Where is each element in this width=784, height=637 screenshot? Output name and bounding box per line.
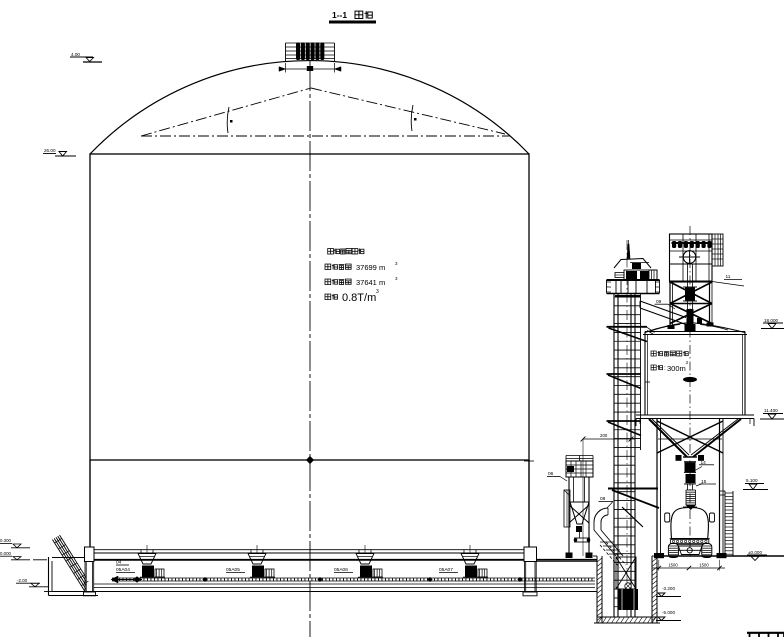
svg-text:0.000: 0.000 bbox=[0, 551, 12, 556]
svg-text:200: 200 bbox=[600, 433, 608, 438]
svg-text:26.00: 26.00 bbox=[44, 148, 56, 153]
svg-text:-2.00: -2.00 bbox=[17, 578, 28, 583]
svg-text:37699 m: 37699 m bbox=[356, 263, 385, 272]
svg-text:1500: 1500 bbox=[699, 562, 709, 567]
svg-text:3: 3 bbox=[686, 360, 689, 365]
svg-text:0.8T/m: 0.8T/m bbox=[342, 292, 376, 304]
svg-text:4.00: 4.00 bbox=[71, 52, 80, 57]
svg-text:-3.200: -3.200 bbox=[662, 586, 675, 591]
svg-text:18.000: 18.000 bbox=[764, 318, 778, 323]
svg-text:300m: 300m bbox=[667, 364, 686, 373]
svg-text:-5.000: -5.000 bbox=[662, 610, 675, 615]
svg-text:3: 3 bbox=[395, 261, 398, 266]
svg-text:1500: 1500 bbox=[668, 562, 678, 567]
svg-text:1--1: 1--1 bbox=[332, 10, 347, 20]
svg-text:5.100: 5.100 bbox=[746, 478, 758, 483]
svg-text:0.300: 0.300 bbox=[0, 538, 12, 543]
svg-text:37641 m: 37641 m bbox=[356, 278, 385, 287]
svg-text:±0.000: ±0.000 bbox=[748, 550, 762, 555]
svg-text:3: 3 bbox=[376, 289, 379, 295]
svg-text::: : bbox=[664, 365, 666, 372]
svg-text:11.400: 11.400 bbox=[764, 408, 778, 413]
svg-text:3: 3 bbox=[395, 276, 398, 281]
